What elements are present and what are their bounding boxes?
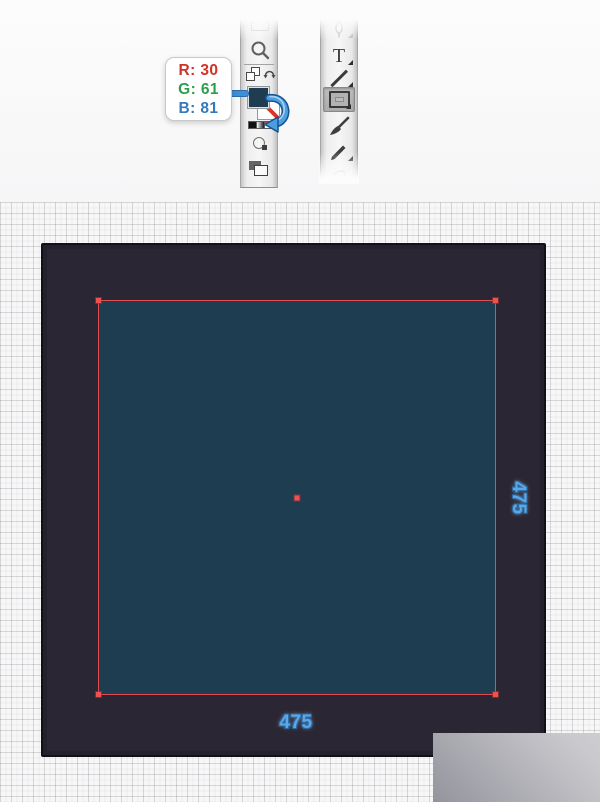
line-tool-button[interactable] xyxy=(321,67,357,89)
paintbrush-tool-icon xyxy=(328,115,350,137)
shaper-tool-icon xyxy=(329,166,349,186)
document-canvas[interactable]: 475 475 xyxy=(0,202,600,802)
type-tool-icon: T xyxy=(333,46,345,66)
zoom-tool-icon[interactable] xyxy=(249,39,271,61)
width-dimension-label: 475 xyxy=(279,712,312,734)
pen-tool-button[interactable] xyxy=(321,18,357,40)
anchor-top-right[interactable] xyxy=(493,298,498,303)
hand-tool-icon[interactable] xyxy=(251,17,269,31)
swap-fill-stroke-icon[interactable] xyxy=(263,67,276,80)
rectangle-tool-button-selected[interactable] xyxy=(323,87,355,112)
pencil-tool-button[interactable] xyxy=(321,141,357,163)
swap-curved-arrow xyxy=(262,88,298,136)
pencil-tool-icon xyxy=(328,141,350,163)
draw-mode-icon[interactable] xyxy=(253,137,267,150)
selected-rectangle[interactable] xyxy=(98,300,496,695)
default-fill-stroke-icon[interactable] xyxy=(246,67,259,80)
rgb-tooltip: R: 30 G: 61 B: 81 xyxy=(165,57,232,121)
paintbrush-tool-button[interactable] xyxy=(321,115,357,137)
artboard[interactable] xyxy=(41,243,546,757)
pen-tool-icon xyxy=(329,19,349,39)
tooltip-red-value: R: 30 xyxy=(179,61,219,80)
toolbar-divider xyxy=(244,64,274,65)
toolbar-fragment-tools: T xyxy=(320,14,358,182)
shaper-tool-button[interactable] xyxy=(321,165,357,187)
tooltip-green-value: G: 61 xyxy=(178,80,219,99)
line-tool-icon xyxy=(330,69,347,86)
anchor-top-left[interactable] xyxy=(96,298,101,303)
center-point[interactable] xyxy=(295,495,300,500)
workspace-top: R: 30 G: 61 B: 81 xyxy=(0,0,600,202)
height-dimension-label: 475 xyxy=(507,481,529,514)
anchor-bottom-right[interactable] xyxy=(493,692,498,697)
anchor-bottom-left[interactable] xyxy=(96,692,101,697)
gradient-swatch-box xyxy=(433,733,600,802)
screenshot-root: R: 30 G: 61 B: 81 xyxy=(0,0,600,802)
screen-mode-icon[interactable] xyxy=(249,161,268,176)
tooltip-blue-value: B: 81 xyxy=(179,99,219,118)
type-tool-button[interactable]: T xyxy=(321,45,357,67)
